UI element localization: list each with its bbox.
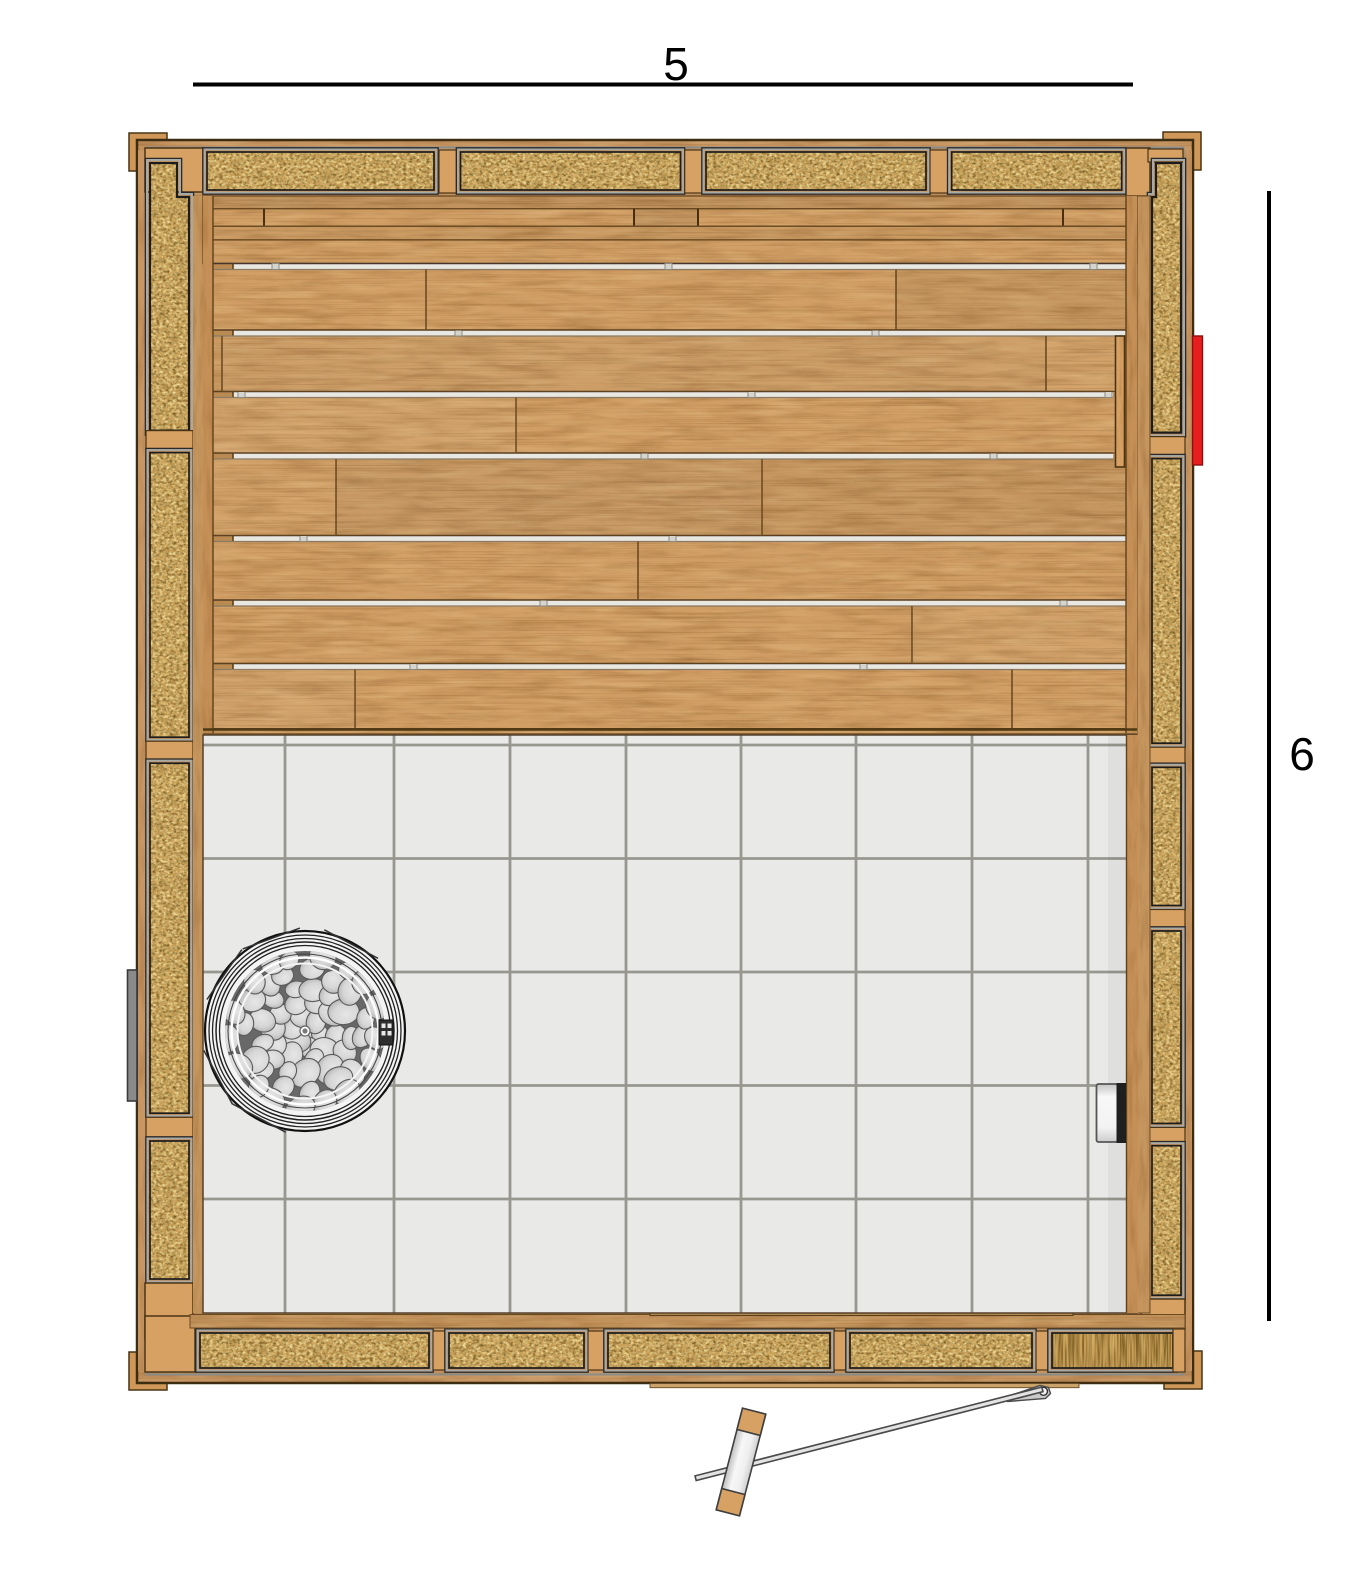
svg-text:6: 6	[1289, 728, 1315, 780]
svg-text:5: 5	[663, 38, 689, 90]
